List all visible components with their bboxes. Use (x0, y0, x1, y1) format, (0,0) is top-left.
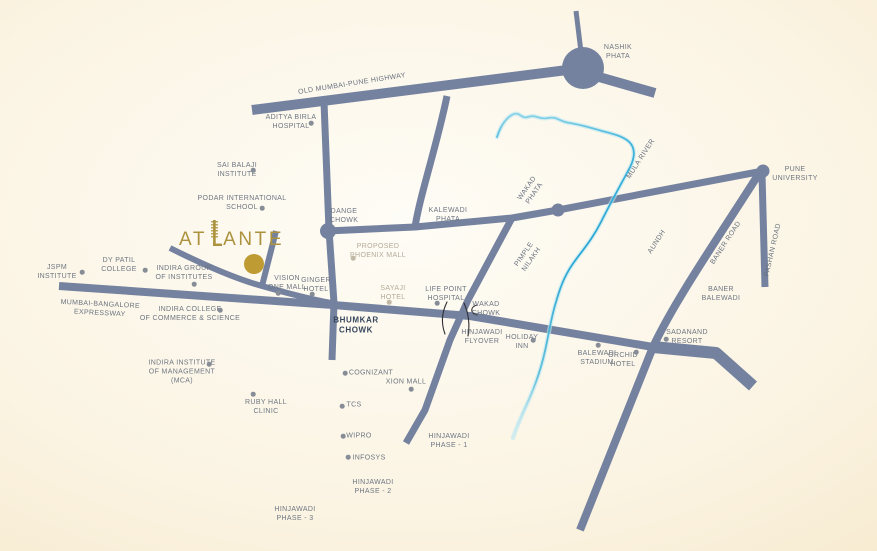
poi-dot-indira-institute-of-management (207, 362, 212, 367)
poi-dot-jspm-institute (80, 270, 85, 275)
label-cognizant: COGNIZANT (349, 368, 393, 377)
atlante-logo-text-left: AT (179, 230, 207, 249)
poi-dot-podar-international-school (260, 206, 265, 211)
poi-dot-tcs (340, 404, 345, 409)
label-dy-patil-college: DY PATIL COLLEGE (101, 256, 137, 274)
poi-dot-aditya-birla-hospital (309, 121, 314, 126)
poi-dot-vision-one-mall (276, 291, 281, 296)
label-aundh: AUNDH (646, 228, 668, 255)
label-kalewadi-phata: KALEWADI PHATA (429, 206, 468, 224)
poi-dot-xion-mall (409, 387, 414, 392)
label-sadanand-resort: SADANAND RESORT (666, 328, 708, 346)
label-wakad-phata: WAKAD PHATA (516, 175, 546, 208)
label-nashik-phata: NASHIK PHATA (604, 43, 632, 61)
poi-dot-sadanand-resort (664, 337, 669, 342)
label-mula-river: MULA RIVER (625, 137, 658, 180)
poi-dot-ginger-hotel (310, 292, 315, 297)
label-proposed-phoenix-mall: PROPOSED PHOENIX MALL (350, 242, 406, 260)
map-labels-layer: JSPM INSTITUTEDY PATIL COLLEGEINDIRA GRO… (0, 0, 877, 551)
atlante-logo: AT ANTE (179, 220, 284, 249)
atlante-logo-text-right: ANTE (223, 230, 284, 249)
poi-dot-balewadi-stadium (596, 343, 601, 348)
label-tcs: TCS (346, 400, 361, 409)
label-pimple-nilakh: PIMPLE NILAKH (513, 240, 544, 273)
poi-dot-sai-balaji-institute (251, 168, 256, 173)
label-hinjawadi-phase-3: HINJAWADI PHASE - 3 (274, 505, 315, 523)
label-bhumkar-chowk: BHUMKAR CHOWK (333, 316, 379, 337)
label-baner-balewadi: BANER BALEWADI (702, 285, 741, 303)
label-wipro: WIPRO (346, 431, 371, 440)
label-ruby-hall-clinic: RUBY HALL CLINIC (245, 398, 287, 416)
label-life-point-hospital: LIFE POINT HOSPITAL (425, 285, 467, 303)
poi-dot-cognizant (343, 371, 348, 376)
poi-dot-dy-patil-college (143, 268, 148, 273)
label-dange-chowk: DANGE CHOWK (330, 207, 359, 225)
poi-dot-proposed-phoenix-mall (351, 256, 356, 261)
poi-dot-sayaji-hotel (387, 300, 392, 305)
poi-dot-infosys (346, 455, 351, 460)
label-hinjawadi-flyover: HINJAWADI FLYOVER (461, 328, 502, 346)
label-wakad-chowk: WAKAD CHOWK (472, 300, 501, 318)
poi-dot-ruby-hall-clinic (251, 392, 256, 397)
label-old-mumbai-pune-highway: OLD MUMBAI-PUNE HIGHWAY (298, 71, 407, 97)
poi-dot-orchid-hotel (634, 350, 639, 355)
label-hinjawadi-phase-2: HINJAWADI PHASE - 2 (352, 478, 393, 496)
label-indira-group-of-institutes: INDIRA GROUP OF INSTITUTES (155, 264, 212, 282)
label-infosys: INFOSYS (352, 453, 385, 462)
label-mumbai-bangalore-expressway: MUMBAI-BANGALORE EXPRESSWAY (60, 298, 140, 320)
atlante-location-map: JSPM INSTITUTEDY PATIL COLLEGEINDIRA GRO… (0, 0, 877, 551)
label-ginger-hotel: GINGER HOTEL (301, 276, 331, 294)
poi-dot-wipro (341, 434, 346, 439)
poi-dot-indira-college-of-commerce (218, 308, 223, 313)
label-sayaji-hotel: SAYAJI HOTEL (380, 284, 405, 302)
label-indira-institute-of-management: INDIRA INSTITUTE OF MANAGEMENT (MCA) (148, 358, 215, 385)
label-hinjawadi-phase-1: HINJAWADI PHASE - 1 (428, 432, 469, 450)
label-pune-university: PUNE UNIVERSITY (772, 165, 818, 183)
label-jspm-institute: JSPM INSTITUTE (37, 263, 76, 281)
label-indira-college-of-commerce: INDIRA COLLEGE OF COMMERCE & SCIENCE (140, 305, 240, 323)
label-pashan-road: PASHAN ROAD (762, 223, 783, 278)
atlante-tower-icon (208, 220, 222, 248)
poi-dot-holiday-inn (531, 338, 536, 343)
label-podar-international-school: PODAR INTERNATIONAL SCHOOL (198, 194, 287, 212)
poi-dot-indira-group-of-institutes (192, 282, 197, 287)
label-xion-mall: XION MALL (386, 377, 427, 386)
poi-dot-life-point-hospital (435, 301, 440, 306)
label-baner-road: BANER ROAD (709, 220, 744, 267)
atlante-site-marker (244, 254, 264, 274)
